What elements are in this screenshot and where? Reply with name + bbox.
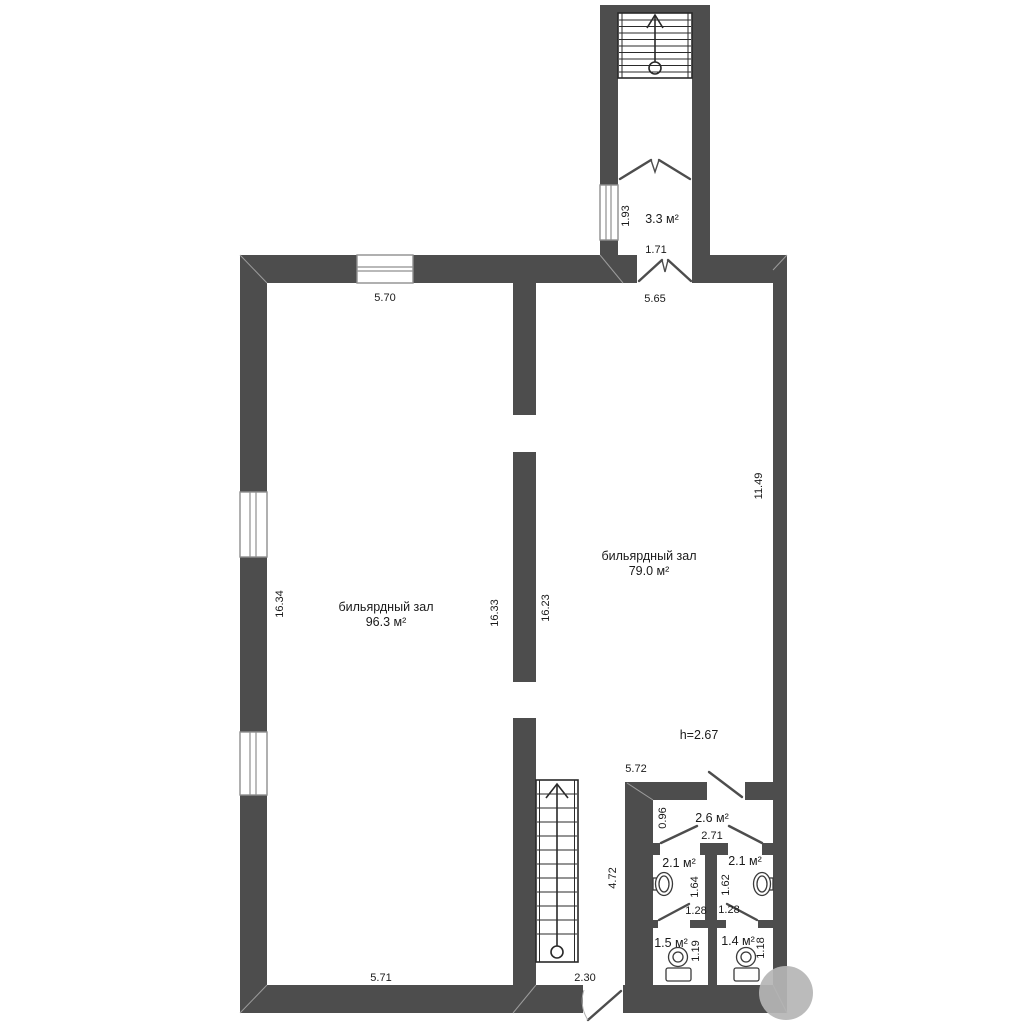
dim-stair-zone-width: 2.30 bbox=[574, 972, 595, 984]
ceiling-height-label: h=2.67 bbox=[680, 728, 719, 742]
extension-right-wall bbox=[692, 5, 710, 283]
door-stair-lobby-double bbox=[620, 160, 690, 179]
floor-plan-page: бильярдный зал 96.3 м² бильярдный зал 79… bbox=[0, 0, 1024, 1024]
window-left-wall-lower bbox=[240, 732, 267, 795]
extension-top-wall bbox=[600, 5, 710, 13]
middle-wall-mid-segment bbox=[513, 452, 536, 682]
window-left-wall-upper bbox=[240, 492, 267, 557]
corridor-top-wall-right bbox=[745, 782, 773, 800]
wc-top-wall-c bbox=[758, 920, 773, 928]
dim-washroom-left-width: 1.28 bbox=[685, 905, 706, 917]
left-wall-mid-segment bbox=[240, 557, 267, 732]
hall-left-name-label: бильярдный зал bbox=[339, 600, 434, 614]
dim-corridor-width: 2.71 bbox=[701, 830, 722, 842]
washroom-left-area-label: 2.1 м² bbox=[662, 856, 696, 870]
hall-right-area-label: 79.0 м² bbox=[629, 564, 670, 578]
wc-block-west-wall bbox=[625, 782, 653, 985]
dim-wc-left-depth: 1.19 bbox=[690, 940, 702, 961]
dim-stair-zone-height: 4.72 bbox=[607, 867, 619, 888]
walls bbox=[240, 5, 787, 1013]
washroom-right-area-label: 2.1 м² bbox=[728, 854, 762, 868]
door-hall-to-corridor bbox=[709, 772, 742, 797]
dim-washroom-right-depth: 1.62 bbox=[720, 874, 732, 895]
dim-washroom-right-width: 1.28 bbox=[718, 904, 739, 916]
sink-left bbox=[653, 873, 673, 896]
hall-left-area-label: 96.3 м² bbox=[366, 615, 407, 629]
dim-washroom-left-depth: 1.64 bbox=[689, 876, 701, 897]
dim-mid-wall-left: 16.33 bbox=[489, 599, 501, 627]
dim-vestibule-width: 1.71 bbox=[645, 244, 666, 256]
corridor-bottom-wall-a bbox=[653, 843, 660, 855]
dim-hall-left-height: 16.34 bbox=[274, 590, 286, 618]
dim-corridor-depth: 0.96 bbox=[657, 807, 669, 828]
window-top-wall bbox=[357, 255, 413, 283]
middle-wall-upper-segment bbox=[513, 283, 536, 415]
door-corridor-to-washroom-right bbox=[729, 826, 762, 843]
wc-top-wall-b bbox=[690, 920, 726, 928]
sink-right bbox=[754, 873, 774, 896]
wc-divider-wall bbox=[708, 928, 717, 985]
staircase-top bbox=[618, 13, 692, 78]
extension-left-wall-lower bbox=[600, 240, 618, 255]
dim-hall-right-top: 5.65 bbox=[644, 293, 665, 305]
dim-hall-right-bottom: 5.72 bbox=[625, 763, 646, 775]
dim-vestibule-depth: 1.93 bbox=[620, 205, 632, 226]
dim-hall-left-bottom: 5.71 bbox=[370, 972, 391, 984]
vestibule-area-label: 3.3 м² bbox=[645, 212, 679, 226]
left-wall-lower-segment bbox=[240, 795, 267, 1013]
hall-right-name-label: бильярдный зал bbox=[602, 549, 697, 563]
dim-hall-right-height: 11.49 bbox=[753, 473, 765, 500]
wc-right-area-label: 1.4 м² bbox=[721, 934, 755, 948]
bottom-wall-left-segment bbox=[240, 985, 583, 1013]
wc-left-area-label: 1.5 м² bbox=[654, 936, 688, 950]
corridor-top-wall-left bbox=[653, 782, 707, 800]
corridor-bottom-wall-c bbox=[762, 843, 773, 855]
washroom-divider-wall bbox=[705, 843, 717, 920]
corridor-area-label: 2.6 м² bbox=[695, 811, 729, 825]
watermark-circle bbox=[759, 966, 813, 1020]
door-exit-bottom bbox=[582, 990, 621, 1020]
extension-left-wall-upper bbox=[600, 5, 618, 185]
window-vestibule bbox=[600, 185, 618, 240]
dim-top-window: 5.70 bbox=[374, 292, 395, 304]
doors bbox=[582, 160, 762, 1020]
wc-top-wall-a bbox=[653, 920, 658, 928]
right-wall bbox=[773, 255, 787, 1013]
middle-wall-lower-segment bbox=[513, 718, 536, 985]
dim-mid-wall-right: 16.23 bbox=[540, 594, 552, 622]
toilet-left bbox=[666, 948, 691, 982]
door-vestibule-to-hall-double bbox=[639, 260, 691, 281]
staircase-bottom bbox=[536, 780, 578, 962]
left-wall-upper-segment bbox=[240, 255, 267, 492]
floor-plan-drawing: бильярдный зал 96.3 м² бильярдный зал 79… bbox=[0, 0, 1024, 1024]
dim-wc-right-depth: 1.18 bbox=[755, 937, 767, 958]
